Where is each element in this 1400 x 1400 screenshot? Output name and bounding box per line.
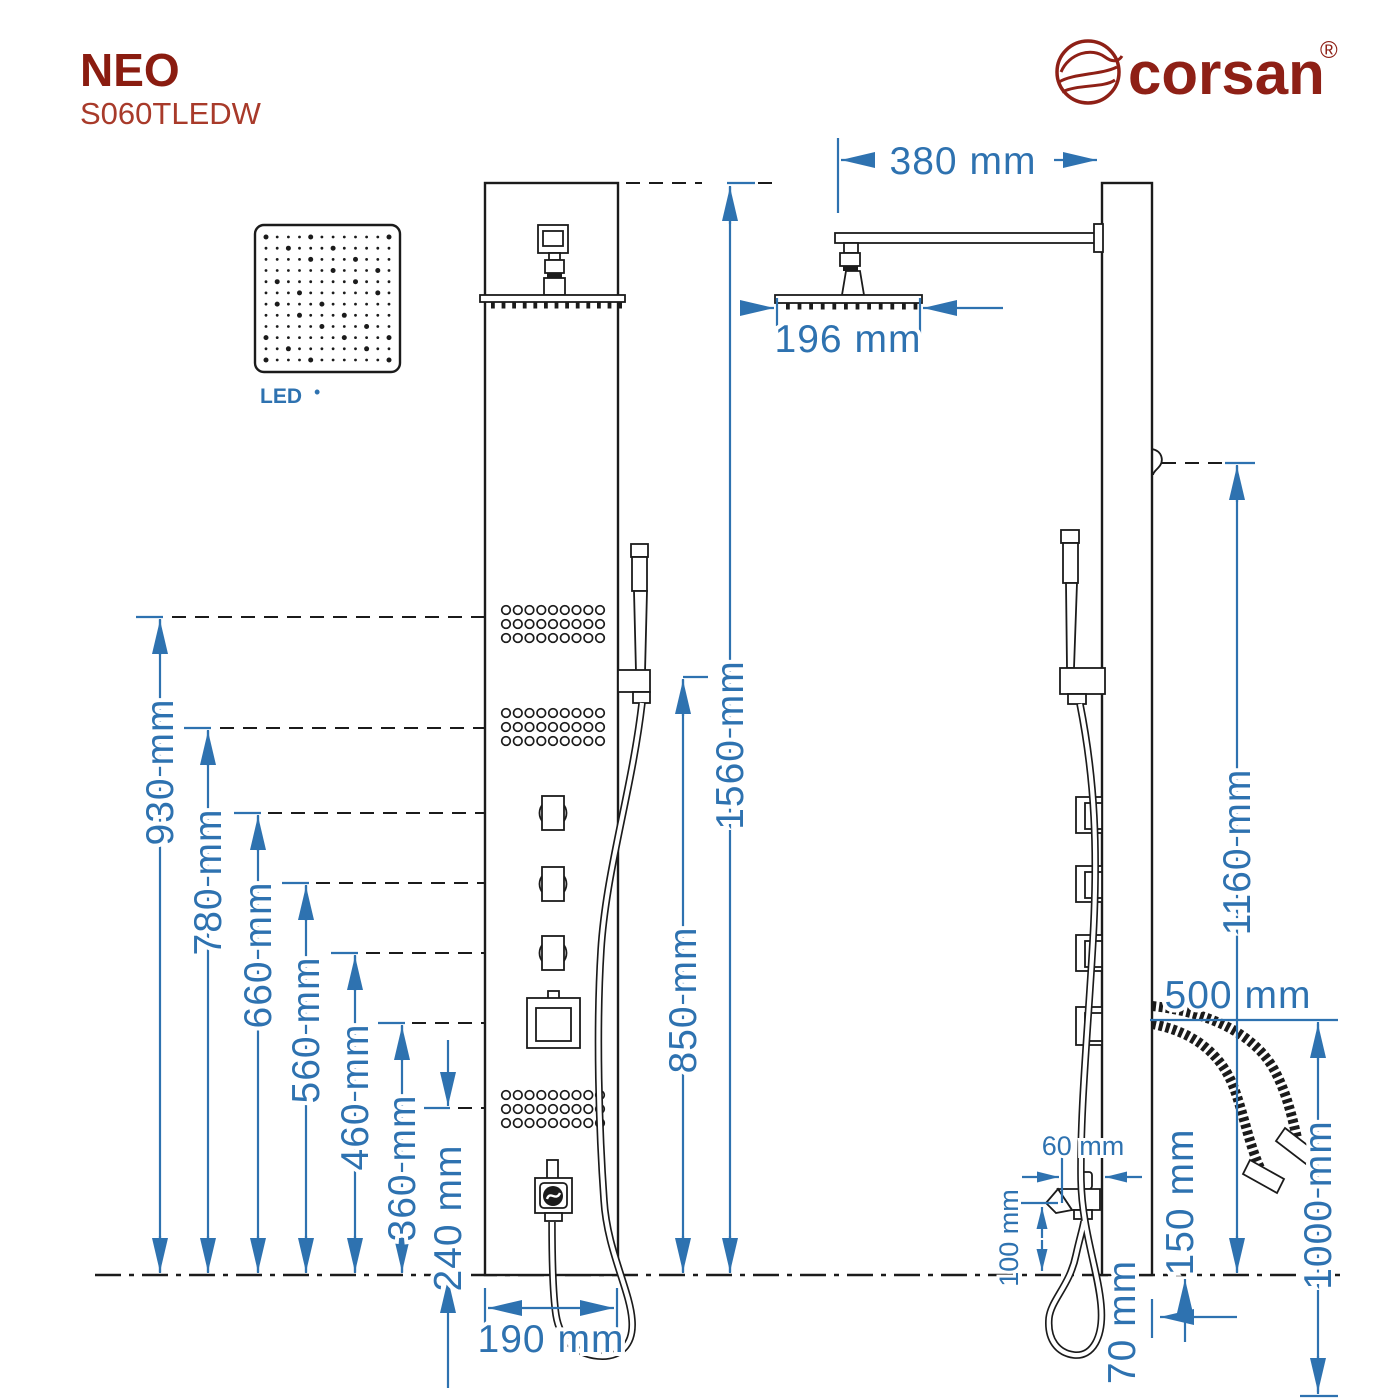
brand-logo: corsan ®	[1057, 37, 1338, 107]
svg-text:1000 mm: 1000 mm	[1297, 1120, 1340, 1290]
dim-460: 460 mm	[331, 953, 377, 1273]
dim-850: 850 mm	[662, 677, 708, 1273]
dim-70: 70 mm	[1101, 1260, 1237, 1384]
svg-text:560 mm: 560 mm	[285, 957, 328, 1104]
dim-150: 150 mm	[1159, 1129, 1202, 1342]
svg-text:780 mm: 780 mm	[187, 809, 230, 956]
knob-1	[540, 796, 567, 830]
dim-1560: 1560 mm	[709, 183, 755, 1273]
logo-wave-3-icon	[1062, 80, 1115, 92]
product-title-block: NEO S060TLEDW	[80, 44, 262, 131]
svg-text:100 mm: 100 mm	[994, 1189, 1024, 1287]
thermostat-display	[527, 991, 580, 1048]
svg-text:380 mm: 380 mm	[890, 140, 1037, 183]
hanging-hook-side	[1152, 449, 1162, 475]
dim-560: 560 mm	[282, 883, 328, 1273]
rain-head-nozzles-side	[786, 303, 917, 310]
front-view	[480, 183, 702, 1356]
knob-3	[540, 936, 567, 970]
svg-text:70 mm: 70 mm	[1101, 1260, 1144, 1384]
svg-text:190 mm: 190 mm	[478, 1318, 625, 1361]
shower-panel-dimension-diagram: NEO S060TLEDW corsan ® LED •	[0, 0, 1400, 1400]
dim-100: 100 mm	[994, 1189, 1058, 1287]
model-number: S060TLEDW	[80, 96, 262, 131]
dim-930: 930 mm	[136, 617, 182, 1273]
hand-shower-side	[1060, 530, 1105, 704]
svg-text:460 mm: 460 mm	[334, 1024, 377, 1171]
svg-text:196 mm: 196 mm	[775, 318, 922, 361]
series-title: NEO	[80, 44, 180, 96]
dim-240: 240 mm	[424, 1040, 470, 1388]
svg-text:1560 mm: 1560 mm	[709, 660, 752, 830]
spout-side	[1046, 1172, 1100, 1219]
dimensions-front: 1560 mm 850 mm 930 mm 780 mm 660 mm	[136, 183, 755, 1388]
svg-text:500 mm: 500 mm	[1165, 974, 1312, 1017]
svg-text:930 mm: 930 mm	[139, 699, 182, 846]
dim-196: 196 mm	[742, 298, 1003, 361]
dim-380: 380 mm	[838, 138, 1097, 213]
dim-1000: 1000 mm	[1297, 1022, 1340, 1396]
panel-body-side	[1102, 183, 1152, 1275]
svg-text:360 mm: 360 mm	[381, 1095, 424, 1242]
svg-text:850 mm: 850 mm	[662, 927, 705, 1074]
svg-text:1160 mm: 1160 mm	[1216, 769, 1259, 936]
registered-trademark: ®	[1320, 37, 1338, 64]
led-label: LED	[260, 385, 302, 408]
svg-text:660 mm: 660 mm	[237, 882, 280, 1029]
dimensions-side: 380 mm 196 mm 1160 mm 500 mm	[742, 138, 1340, 1396]
hand-shower-front	[618, 544, 650, 703]
led-bullet: •	[314, 382, 320, 402]
brand-name: corsan	[1128, 40, 1325, 107]
logo-wave-2-icon	[1059, 67, 1117, 82]
logo-wave-circle-icon	[1057, 41, 1119, 103]
svg-text:150 mm: 150 mm	[1159, 1129, 1202, 1276]
control-knobs-front	[540, 796, 567, 970]
dim-660: 660 mm	[234, 813, 280, 1273]
dim-360: 360 mm	[378, 1023, 424, 1273]
led-showerhead-detail: LED •	[255, 225, 400, 408]
knob-2	[540, 867, 567, 901]
dim-500: 500 mm	[1150, 974, 1338, 1020]
svg-text:60 mm: 60 mm	[1042, 1131, 1125, 1161]
technical-drawing-page: NEO S060TLEDW corsan ® LED •	[0, 0, 1400, 1400]
svg-text:240 mm: 240 mm	[427, 1145, 470, 1292]
shower-arm-side	[775, 224, 1103, 310]
dim-780: 780 mm	[184, 728, 230, 1273]
